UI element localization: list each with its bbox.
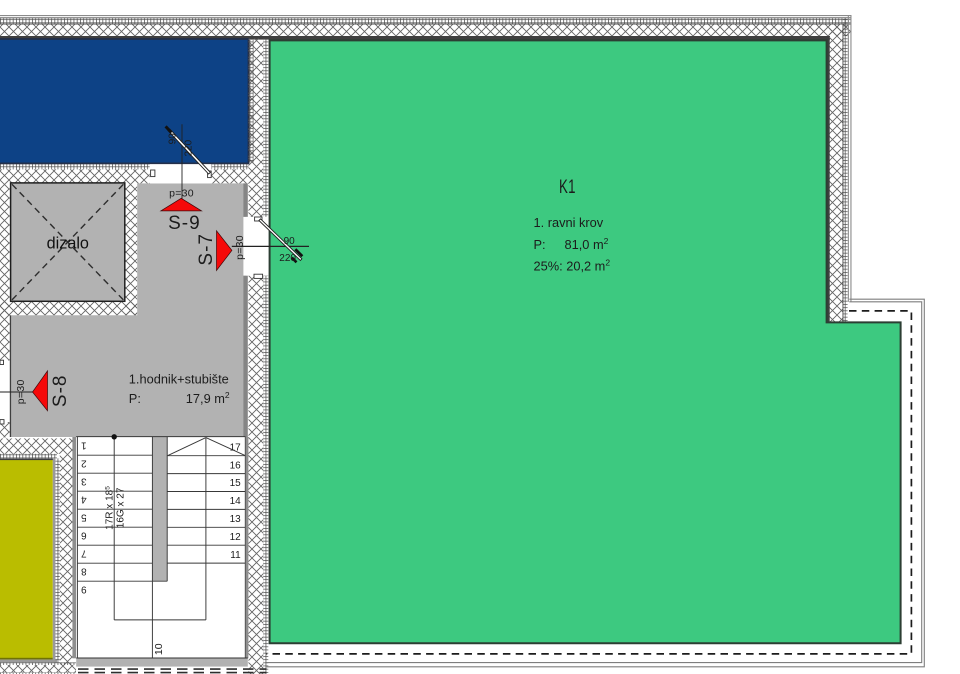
svg-text:220: 220 xyxy=(279,253,296,264)
svg-text:8: 8 xyxy=(81,566,87,577)
svg-text:4: 4 xyxy=(81,494,87,505)
svg-text:S-9: S-9 xyxy=(168,213,201,234)
svg-text:2: 2 xyxy=(81,458,87,469)
svg-text:14: 14 xyxy=(230,496,242,507)
svg-text:S-7: S-7 xyxy=(196,233,217,266)
svg-text:p=30: p=30 xyxy=(234,235,246,260)
svg-text:220: 220 xyxy=(184,139,195,156)
svg-text:p=30: p=30 xyxy=(169,188,194,200)
svg-text:17R x 185: 17R x 185 xyxy=(105,486,116,530)
svg-text:7: 7 xyxy=(81,548,87,559)
svg-text:S-8: S-8 xyxy=(50,375,71,408)
svg-text:81,0 m2: 81,0 m2 xyxy=(565,236,609,252)
svg-text:12: 12 xyxy=(230,532,242,543)
svg-text:17,9 m2: 17,9 m2 xyxy=(186,390,230,406)
svg-text:10: 10 xyxy=(153,643,165,655)
svg-text:17: 17 xyxy=(230,442,242,453)
svg-text:p=30: p=30 xyxy=(15,379,27,404)
svg-text:13: 13 xyxy=(230,514,242,525)
svg-text:K1: K1 xyxy=(559,176,576,198)
svg-text:16G x 27: 16G x 27 xyxy=(115,487,126,528)
svg-text:P:: P: xyxy=(129,391,141,406)
svg-text:25%: 20,2 m2: 25%: 20,2 m2 xyxy=(534,258,611,274)
svg-text:1: 1 xyxy=(81,440,87,451)
svg-text:6: 6 xyxy=(81,530,87,541)
svg-text:11: 11 xyxy=(230,550,241,561)
svg-text:90: 90 xyxy=(167,133,178,145)
svg-text:1.hodnik+stubište: 1.hodnik+stubište xyxy=(129,371,229,386)
svg-text:3: 3 xyxy=(81,476,87,487)
svg-text:1. ravni krov: 1. ravni krov xyxy=(534,215,604,230)
svg-text:dizalo: dizalo xyxy=(47,235,89,253)
svg-text:15: 15 xyxy=(230,478,242,489)
svg-text:90: 90 xyxy=(284,236,296,247)
svg-text:16: 16 xyxy=(230,460,242,471)
svg-text:5: 5 xyxy=(81,512,87,523)
svg-text:9: 9 xyxy=(81,584,87,595)
svg-text:P:: P: xyxy=(534,237,546,252)
